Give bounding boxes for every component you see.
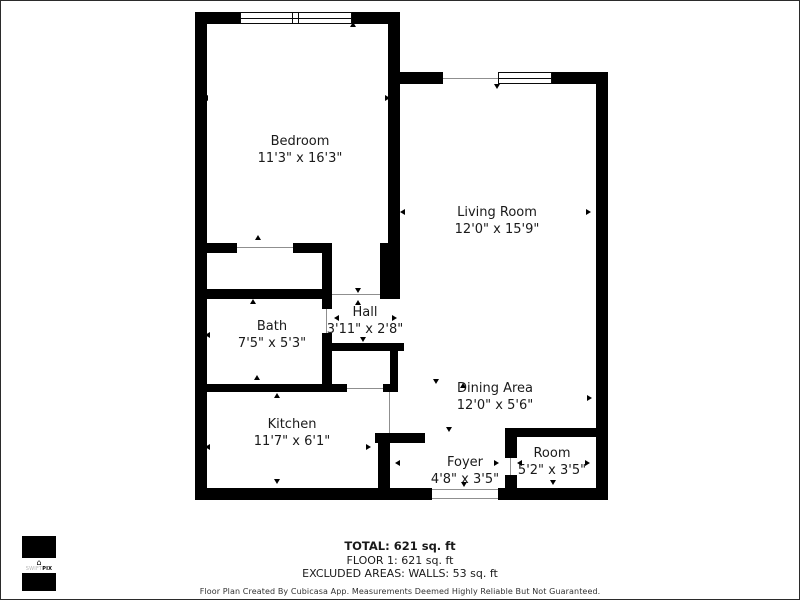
room-label-living-room: Living Room 12'0" x 15'9" <box>455 205 540 239</box>
room-name: Dining Area <box>457 381 533 398</box>
dimension-arrow <box>400 209 405 215</box>
dimension-arrow <box>203 95 208 101</box>
dimension-arrow <box>360 337 366 342</box>
wall-living-top-left <box>397 72 443 84</box>
wall-foyer-top <box>375 433 425 443</box>
dimension-arrow <box>550 430 556 435</box>
logo-brand-text: SWIFTPIX <box>26 566 52 572</box>
wall-bedroom-top-left <box>195 12 240 24</box>
dimension-arrow <box>585 460 590 466</box>
floor-area-text: FLOOR 1: 621 sq. ft <box>0 555 800 566</box>
wall-room-left-upper <box>505 428 517 458</box>
window-sill <box>241 18 351 19</box>
opening-bedroom-closet <box>237 247 293 248</box>
house-icon: ⌂ <box>36 559 41 566</box>
window-sill <box>499 78 551 79</box>
room-name: Bath <box>238 319 306 336</box>
dimension-arrow <box>550 480 556 485</box>
dimension-arrow <box>395 460 400 466</box>
room-name: Living Room <box>455 205 540 222</box>
room-label-hall: Hall 3'11" x 2'8" <box>327 305 403 339</box>
opening-hall-top <box>332 294 380 295</box>
dimension-arrow <box>586 209 591 215</box>
dimension-arrow <box>433 379 439 384</box>
window-pane-divider <box>292 13 293 23</box>
room-name: Bedroom <box>258 134 343 151</box>
dimension-arrow <box>366 444 371 450</box>
dimension-arrow <box>385 95 390 101</box>
dimension-arrow <box>494 460 499 466</box>
opening-kitchen-dining <box>389 392 390 433</box>
room-label-room: Room 5'2" x 3'5" <box>518 446 586 480</box>
wall-room-left-lower <box>505 475 517 488</box>
dimension-arrow <box>517 460 522 466</box>
room-label-bath: Bath 7'5" x 5'3" <box>238 319 306 353</box>
floor-plan-image: Bedroom 11'3" x 16'3" Living Room 12'0" … <box>0 0 800 600</box>
opening-living-top <box>443 78 498 79</box>
dimension-arrow <box>392 315 397 321</box>
wall-closet-top-a <box>195 243 237 253</box>
room-dimensions: 5'2" x 3'5" <box>518 463 586 480</box>
dimension-arrow <box>461 482 467 487</box>
image-border <box>0 0 800 600</box>
dimension-arrow <box>587 395 592 401</box>
logo-brand-band: ⌂ SWIFTPIX <box>22 558 56 573</box>
wall-bedroom-right <box>388 12 400 249</box>
logo-brand-light: SWIFT <box>26 566 42 572</box>
room-dimensions: 7'5" x 5'3" <box>238 336 306 353</box>
dimension-arrow <box>254 375 260 380</box>
room-name: Foyer <box>431 455 499 472</box>
wall-bottom-left <box>195 488 432 500</box>
wall-bottom-right <box>498 488 608 500</box>
total-area-text: TOTAL: 621 sq. ft <box>0 541 800 553</box>
wall-kitchen-top <box>195 384 347 392</box>
wall-hall-bottom <box>327 343 404 351</box>
room-label-dining-area: Dining Area 12'0" x 5'6" <box>457 381 533 415</box>
wall-kitchen-top-stub <box>383 384 398 392</box>
dimension-arrow <box>205 332 210 338</box>
room-dimensions: 11'3" x 16'3" <box>258 151 343 168</box>
window-pane-divider <box>298 13 299 23</box>
dimension-arrow <box>355 288 361 293</box>
dimension-arrow <box>205 444 210 450</box>
dimension-arrow <box>255 235 261 240</box>
room-dimensions: 12'0" x 5'6" <box>457 398 533 415</box>
room-dimensions: 12'0" x 15'9" <box>455 222 540 239</box>
dimension-arrow <box>250 299 256 304</box>
dimension-arrow <box>274 479 280 484</box>
logo-brand-bold: PIX <box>42 566 52 572</box>
dimension-arrow <box>350 22 356 27</box>
opening-pantry-door <box>347 388 383 389</box>
opening-room-door <box>510 458 511 475</box>
logo-bottom-block <box>22 573 56 591</box>
wall-outer-right <box>596 72 608 500</box>
swiftpix-logo: ⌂ SWIFTPIX <box>22 536 56 591</box>
disclaimer-text: Floor Plan Created By Cubicasa App. Meas… <box>0 587 800 596</box>
area-summary: TOTAL: 621 sq. ft FLOOR 1: 621 sq. ft EX… <box>0 541 800 596</box>
room-label-bedroom: Bedroom 11'3" x 16'3" <box>258 134 343 168</box>
living-room-window <box>498 72 552 84</box>
dimension-arrow <box>494 84 500 89</box>
opening-entry-top <box>432 489 498 490</box>
room-dimensions: 11'7" x 6'1" <box>254 434 330 451</box>
dimension-arrow <box>334 315 339 321</box>
wall-outer-left <box>195 12 207 500</box>
bedroom-window <box>240 12 352 24</box>
dimension-arrow <box>446 427 452 432</box>
dimension-arrow <box>355 300 361 305</box>
opening-entry-bottom <box>432 498 498 499</box>
room-label-kitchen: Kitchen 11'7" x 6'1" <box>254 417 330 451</box>
logo-top-block <box>22 536 56 558</box>
room-name: Room <box>518 446 586 463</box>
dimension-arrow <box>274 393 280 398</box>
wall-bedroom-right-lower <box>380 243 400 299</box>
room-name: Kitchen <box>254 417 330 434</box>
excluded-areas-text: EXCLUDED AREAS: WALLS: 53 sq. ft <box>0 568 800 579</box>
dimension-arrow <box>460 383 466 388</box>
wall-bath-top <box>195 289 332 299</box>
